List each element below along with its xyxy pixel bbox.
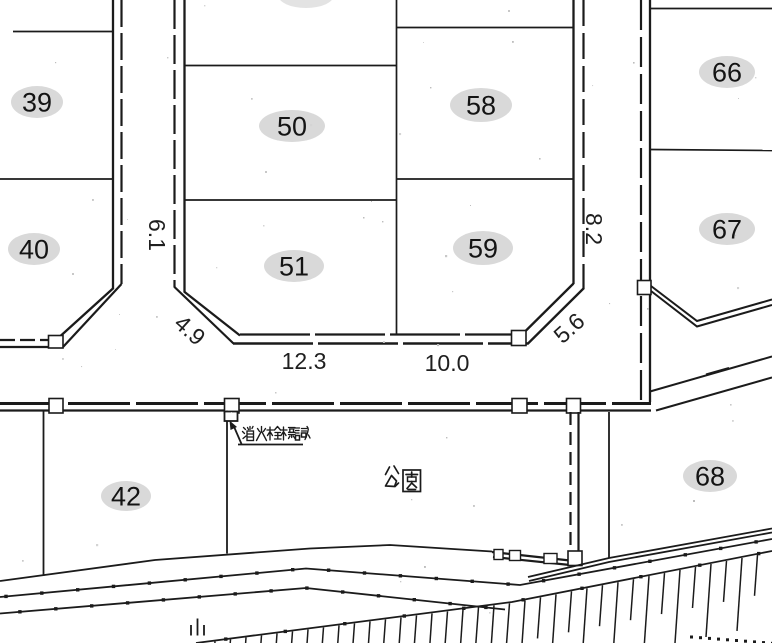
svg-text:42: 42 xyxy=(111,482,141,512)
svg-text:67: 67 xyxy=(712,215,742,245)
svg-text:66: 66 xyxy=(712,58,742,88)
svg-text:39: 39 xyxy=(22,88,52,118)
svg-text:50: 50 xyxy=(277,112,307,142)
svg-text:6.1: 6.1 xyxy=(144,219,170,251)
svg-text:8.2: 8.2 xyxy=(581,213,607,245)
svg-text:59: 59 xyxy=(468,234,498,264)
svg-text:68: 68 xyxy=(695,462,725,492)
svg-text:40: 40 xyxy=(19,235,49,265)
svg-text:51: 51 xyxy=(279,252,309,282)
svg-text:58: 58 xyxy=(466,91,496,121)
svg-text:10.0: 10.0 xyxy=(425,350,470,376)
svg-text:12.3: 12.3 xyxy=(282,348,327,374)
